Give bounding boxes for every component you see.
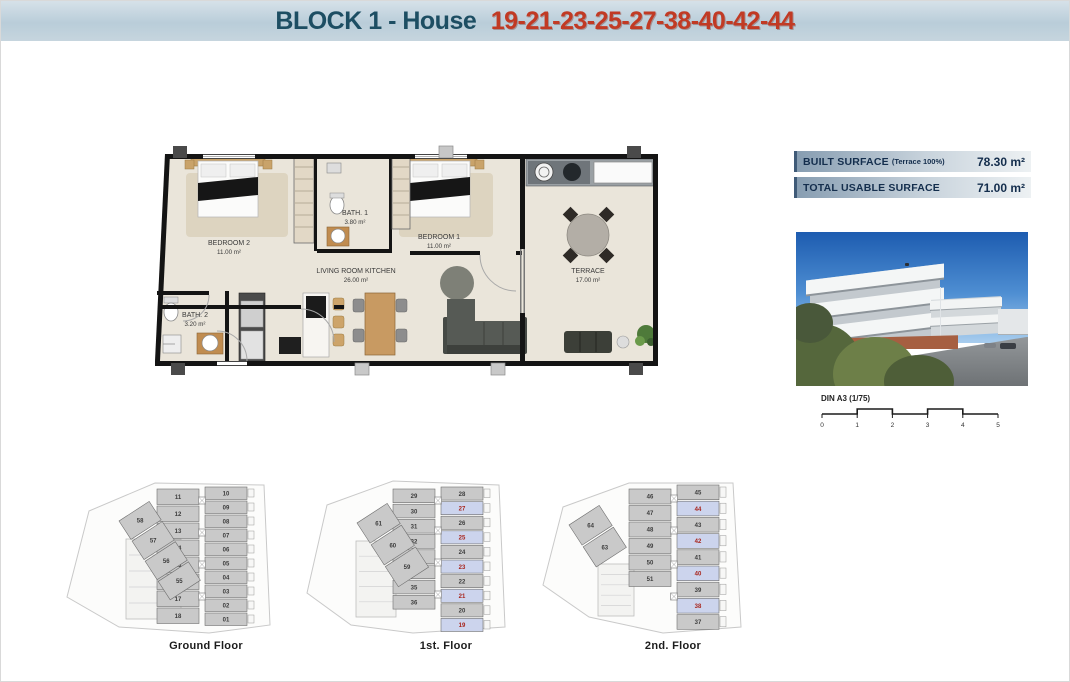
photo-far-houses (998, 309, 1028, 334)
floorplan-first-svg: 2930313233343536282726252423222120196160… (293, 477, 515, 635)
balcony-tab (248, 559, 254, 567)
built-surface-value: 78.30 m² (977, 155, 1025, 169)
room-label: BATH. 1 (342, 210, 368, 217)
unit-number: 20 (459, 609, 466, 615)
tv-icon (279, 337, 301, 354)
unit-number: 38 (695, 604, 702, 610)
balcony-tab (720, 487, 726, 497)
usable-surface-value: 71.00 m² (977, 181, 1025, 195)
scale-tick-label: 5 (996, 422, 1000, 429)
unit-number: 21 (459, 594, 466, 600)
balcony-tab (720, 584, 726, 594)
unit-number: 23 (459, 565, 466, 571)
floor-label-ground: Ground Floor (95, 640, 317, 652)
photo-streetlamp-head (905, 263, 909, 266)
unit-number: 18 (175, 614, 182, 620)
room-area: 3.80 m² (345, 219, 366, 226)
unit-number: 40 (695, 572, 702, 578)
photo-streetlamp-pole (940, 287, 941, 339)
unit-number: 03 (223, 589, 230, 595)
floorplan-second-svg: 4647484950514544434241403938376463 (533, 477, 755, 635)
balcony-tab (720, 600, 726, 610)
terrace-table-icon (563, 207, 615, 264)
unit-number: 02 (223, 603, 230, 609)
balcony-tab (720, 519, 726, 529)
photo-side-building (931, 296, 1001, 337)
scale-tick-label: 2 (891, 422, 895, 429)
photo-car (984, 343, 996, 348)
room-area: 26.00 m² (344, 277, 368, 284)
room-area: 3.20 m² (185, 321, 206, 328)
scale-graphic: 012345 (819, 404, 1005, 430)
balcony-tab (248, 489, 254, 497)
balcony-tab (248, 531, 254, 539)
unit-number: 01 (223, 617, 230, 623)
unit-number: 06 (223, 547, 230, 553)
balcony-tab (248, 573, 254, 581)
page-title: BLOCK 1 - House 19-21-23-25-27-38-40-42-… (275, 7, 794, 36)
unit-number: 09 (223, 505, 230, 511)
unit-number: 11 (175, 495, 182, 501)
floor-label-second: 2nd. Floor (562, 640, 784, 652)
room-label: BATH. 2 (182, 312, 208, 319)
room-label: BEDROOM 2 (208, 240, 250, 247)
balcony-tab (720, 552, 726, 562)
header-bar: BLOCK 1 - House 19-21-23-25-27-38-40-42-… (1, 1, 1069, 41)
unit-number: 56 (163, 559, 170, 565)
scale-bar: DIN A3 (1/75) 012345 (819, 394, 1009, 435)
unit-number: 30 (411, 509, 418, 515)
scale-tick-label: 0 (820, 422, 824, 429)
room-area: 11.00 m² (217, 249, 241, 256)
balcony-tab (248, 545, 254, 553)
unit-number: 61 (375, 521, 382, 527)
unit-number: 55 (176, 579, 183, 585)
floorplan-first: 2930313233343536282726252423222120196160… (293, 477, 515, 653)
floor-label-first: 1st. Floor (335, 640, 557, 652)
unit-number: 17 (175, 597, 182, 603)
balcony-tab (484, 489, 490, 498)
room-label: LIVING ROOM KITCHEN (316, 268, 395, 275)
scale-tick-label: 4 (961, 422, 965, 429)
unit-number: 04 (223, 575, 230, 581)
balcony-tab (484, 577, 490, 586)
unit-number: 13 (175, 529, 182, 535)
unit-number: 45 (695, 491, 702, 497)
unit-number: 37 (695, 620, 702, 626)
balcony-tab (248, 601, 254, 609)
balcony-tab (248, 615, 254, 623)
unit-number: 31 (411, 524, 418, 530)
balcony-tab (484, 547, 490, 556)
scale-tick-label: 3 (926, 422, 930, 429)
building-photo (796, 232, 1028, 386)
unit-number: 10 (223, 491, 230, 497)
balcony-tab (484, 518, 490, 527)
balcony-tab (248, 517, 254, 525)
unit-number: 64 (587, 523, 594, 529)
core-area (598, 564, 634, 616)
unit-number: 26 (459, 521, 466, 527)
room-area: 11.00 m² (427, 243, 451, 250)
unit-number: 48 (647, 528, 654, 534)
floorplan-ground: 1112131415161718100908070605040302015857… (59, 477, 281, 653)
balcony-tab (720, 617, 726, 627)
round-rug (440, 266, 474, 300)
apartment-floorplan: BEDROOM 2 11.00 m² BATH. 1 3.80 m² BEDRO… (151, 145, 666, 393)
unit-number: 28 (459, 492, 466, 498)
balcony-tab (484, 620, 490, 629)
balcony-tab (484, 606, 490, 615)
photo-car (1000, 343, 1016, 349)
unit-number: 19 (459, 623, 466, 629)
unit-number: 25 (459, 536, 466, 542)
unit-number: 41 (695, 555, 702, 561)
surface-table: BUILT SURFACE (Terrace 100%) 78.30 m² TO… (794, 151, 1031, 203)
unit-number: 47 (647, 511, 654, 517)
unit-number: 58 (137, 519, 144, 525)
balcony-tab (720, 503, 726, 513)
unit-number: 50 (647, 561, 654, 567)
balcony-tab (720, 536, 726, 546)
unit-number: 51 (647, 577, 654, 583)
unit-number: 39 (695, 588, 702, 594)
room-label: BEDROOM 1 (418, 234, 460, 241)
unit-number: 42 (695, 539, 702, 545)
usable-surface-row: TOTAL USABLE SURFACE 71.00 m² (794, 177, 1031, 198)
unit-number: 46 (647, 495, 654, 501)
terrace-top-units (526, 159, 656, 186)
balcony-tab (484, 562, 490, 571)
unit-number: 57 (150, 539, 157, 545)
unit-number: 63 (601, 545, 608, 551)
unit-number: 49 (647, 544, 654, 550)
house-numbers: 19-21-23-25-27-38-40-42-44 (491, 7, 795, 35)
room-label: TERRACE (571, 268, 605, 275)
balcony-tab (484, 504, 490, 513)
block-label: BLOCK 1 - House (275, 7, 476, 35)
balcony-tab (720, 568, 726, 578)
usable-surface-label: TOTAL USABLE SURFACE (803, 182, 940, 194)
balcony-tab (484, 591, 490, 600)
unit-number: 59 (404, 565, 411, 571)
built-surface-label: BUILT SURFACE (803, 156, 889, 168)
unit-number: 36 (411, 600, 418, 606)
unit-number: 29 (411, 494, 418, 500)
unit-number: 35 (411, 585, 418, 591)
floorplan-ground-svg: 1112131415161718100908070605040302015857… (59, 477, 281, 635)
unit-number: 22 (459, 579, 466, 585)
built-surface-row: BUILT SURFACE (Terrace 100%) 78.30 m² (794, 151, 1031, 172)
balcony-tab (484, 533, 490, 542)
floorplan-second: 4647484950514544434241403938376463 2nd. … (533, 477, 755, 653)
unit-number: 12 (175, 512, 182, 518)
unit-number: 08 (223, 519, 230, 525)
unit-number: 24 (459, 550, 466, 556)
unit-number: 05 (223, 561, 230, 567)
unit-number: 60 (389, 543, 396, 549)
balcony-tab (248, 587, 254, 595)
room-area: 17.00 m² (576, 277, 600, 284)
unit-number: 27 (459, 506, 466, 512)
balcony-tab (248, 503, 254, 511)
scale-tick-label: 1 (855, 422, 859, 429)
unit-number: 43 (695, 523, 702, 529)
unit-number: 44 (695, 507, 702, 513)
unit-number: 07 (223, 533, 230, 539)
scale-label: DIN A3 (1/75) (821, 394, 1009, 403)
built-surface-note: (Terrace 100%) (892, 157, 945, 166)
plan-sheet-page: BLOCK 1 - House 19-21-23-25-27-38-40-42-… (0, 0, 1070, 682)
